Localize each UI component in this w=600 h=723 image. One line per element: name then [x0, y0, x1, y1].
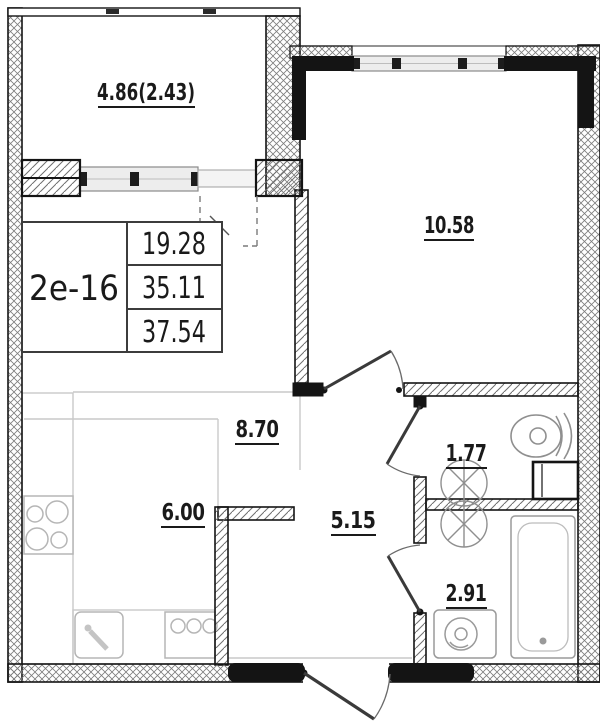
- apartment-info-table: 2е-16 19.28 35.11 37.54: [22, 222, 222, 352]
- window-mullion: [458, 58, 467, 69]
- sill-pier-right: [256, 160, 302, 196]
- wall-kitchen-partition-v: [215, 507, 228, 665]
- wall-balcony-top: [8, 8, 300, 16]
- kitchen-appliance-icon: [165, 612, 217, 658]
- kitchen-sink-icon: [75, 612, 123, 658]
- floor-plan-drawing: 2е-16 19.28 35.11 37.54 4.86(2.43) 10.58…: [0, 0, 600, 723]
- water-heater-icon: [533, 462, 578, 499]
- bathtub-drain: [540, 638, 547, 645]
- hall-area-label: 5.15: [331, 508, 376, 534]
- apartment-area-value: 35.11: [142, 271, 206, 306]
- wall-bedroom-bottom-solid: [293, 383, 323, 396]
- bedroom-area-label: 10.58: [424, 213, 474, 239]
- bathroom-area-label: 2.91: [446, 581, 487, 607]
- balcony-area-label: 4.86(2.43): [97, 80, 195, 106]
- kitchen-zone-area-label: 6.00: [162, 500, 205, 526]
- wall-kitchen-partition-h: [218, 507, 294, 520]
- balcony-door-band: [198, 170, 256, 187]
- living-area-value: 19.28: [142, 227, 206, 262]
- wall-bath-vertical-c: [414, 613, 426, 665]
- door-stop: [396, 387, 402, 393]
- pier-top-right-v: [578, 56, 594, 128]
- balcony-rail-tick: [106, 9, 119, 14]
- window-mullion: [392, 58, 401, 69]
- wall-studio-bedroom: [295, 190, 308, 383]
- floor-plan: 2е-16 19.28 35.11 37.54 4.86(2.43) 10.58…: [0, 0, 600, 723]
- entrance-jamb-right: [388, 663, 474, 682]
- bathtub-icon: [511, 516, 575, 658]
- window-mullion: [130, 172, 139, 186]
- wall-bath-vertical-b: [414, 477, 426, 543]
- window-mullion: [191, 172, 198, 186]
- entrance-jamb-left: [228, 663, 305, 682]
- wall-exterior-left: [8, 8, 22, 682]
- balcony-rail-tick: [203, 9, 216, 14]
- wall-bedroom-bottom: [404, 383, 578, 396]
- wc-area-label: 1.77: [446, 441, 487, 467]
- wall-exterior-right: [578, 45, 600, 682]
- total-area-value: 37.54: [142, 315, 206, 350]
- stove-icon: [24, 496, 73, 554]
- pier-top-left-v: [292, 56, 306, 140]
- living-zone-area-label: 8.70: [236, 417, 279, 443]
- unit-number-label: 2е-16: [29, 269, 119, 309]
- washing-machine-icon: [434, 610, 496, 658]
